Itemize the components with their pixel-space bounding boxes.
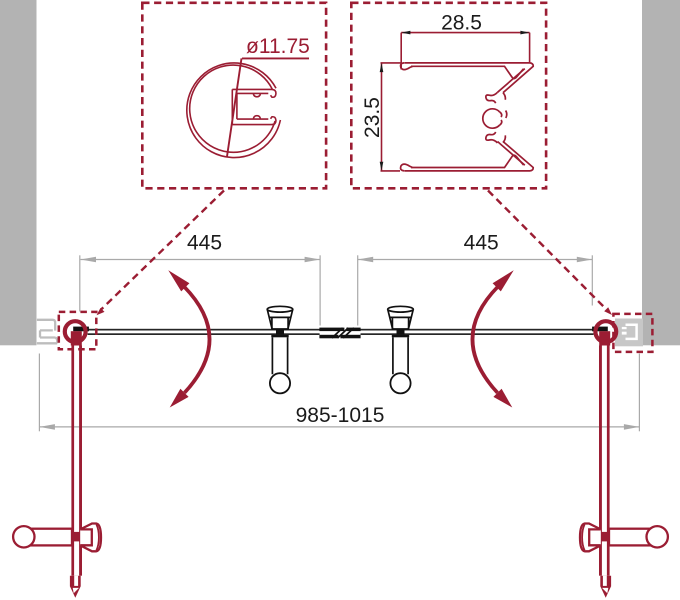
svg-text:985-1015: 985-1015: [296, 404, 385, 427]
svg-text:23.5: 23.5: [361, 97, 384, 138]
svg-text:445: 445: [464, 232, 499, 255]
svg-text:28.5: 28.5: [441, 12, 482, 35]
svg-text:445: 445: [187, 232, 222, 255]
svg-text:ø11.75: ø11.75: [246, 35, 310, 58]
